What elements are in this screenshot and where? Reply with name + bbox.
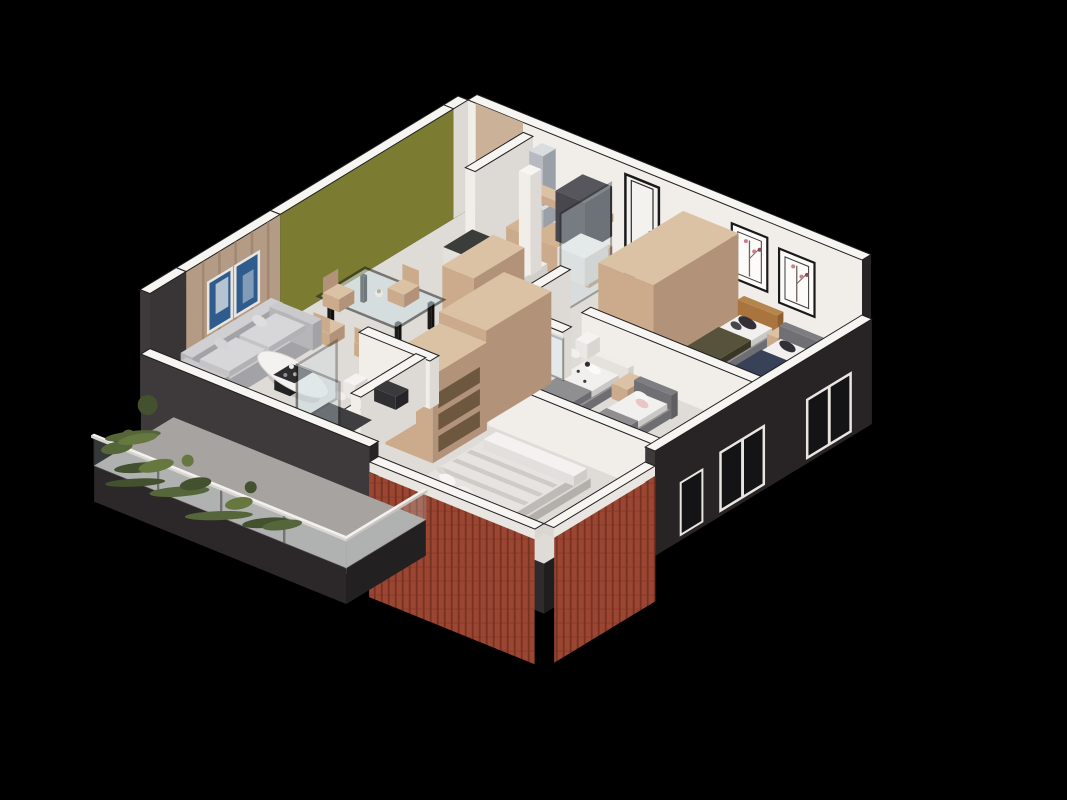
balcony-plant-west bbox=[138, 395, 158, 415]
se-window-mullion bbox=[828, 386, 831, 446]
bed3-dot bbox=[583, 380, 586, 383]
tray-item bbox=[283, 373, 287, 377]
bed3-dot bbox=[577, 370, 580, 373]
balcony-plant-tuft bbox=[245, 481, 257, 493]
screenshot-root bbox=[0, 0, 1067, 800]
bed3-pillow-accent bbox=[585, 362, 590, 367]
balcony-plant-tuft bbox=[182, 455, 194, 467]
tray-item bbox=[289, 364, 294, 369]
se-window-mullion bbox=[741, 439, 744, 499]
dining-centerpiece-detail bbox=[377, 289, 381, 293]
floorplan-scene bbox=[0, 0, 1067, 800]
